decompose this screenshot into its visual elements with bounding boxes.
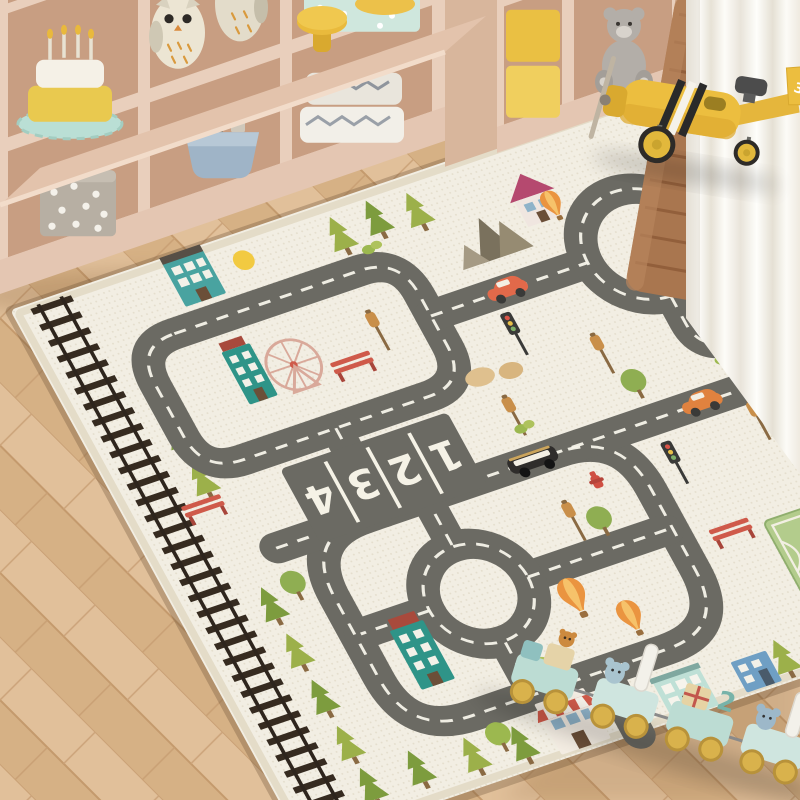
kids-playroom-scene: 1 2 3 4 1 2 3 4 (0, 0, 800, 800)
